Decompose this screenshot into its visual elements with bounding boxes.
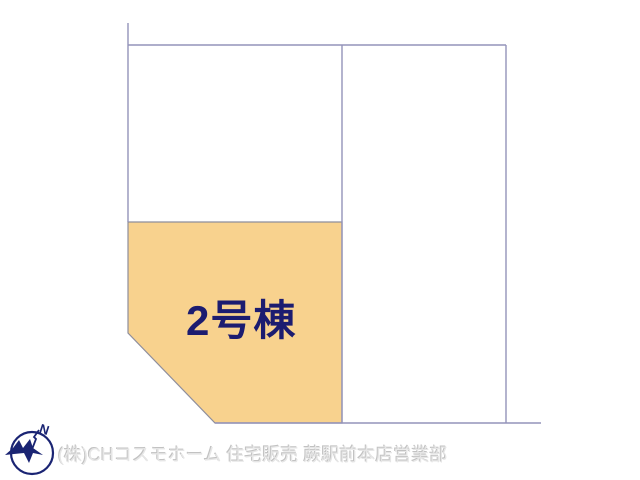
lot-2-label: 2号棟 (186, 299, 296, 343)
site-plan-canvas: 2号棟 N (株)CHコスモホーム 住宅販売 蕨駅前本店営業部 (0, 0, 640, 480)
company-watermark: (株)CHコスモホーム 住宅販売 蕨駅前本店営業部 (58, 446, 447, 466)
compass-north-label: N (38, 421, 52, 438)
compass-icon: N (3, 421, 61, 479)
compass-bird-shape (5, 439, 43, 463)
site-plan-drawing (0, 0, 640, 480)
